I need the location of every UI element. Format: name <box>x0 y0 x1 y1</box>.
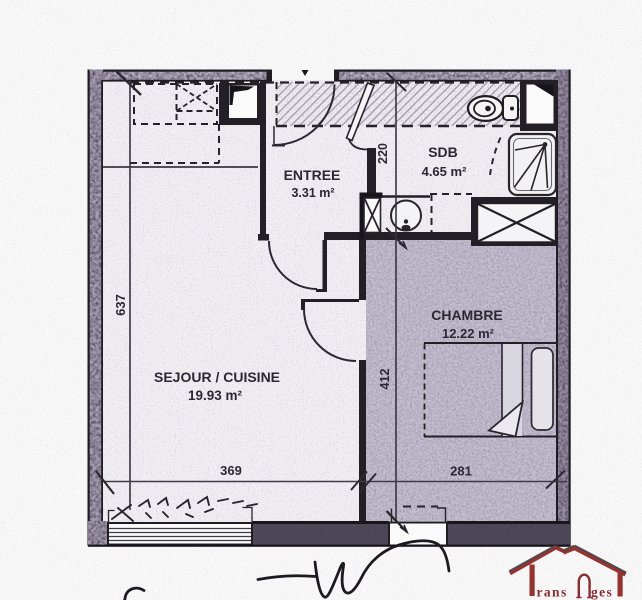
svg-text:3.31 m²: 3.31 m² <box>291 186 334 200</box>
svg-text:369: 369 <box>220 463 242 478</box>
svg-text:637: 637 <box>113 294 128 316</box>
svg-text:4.65 m²: 4.65 m² <box>422 164 467 179</box>
svg-text:CHAMBRE: CHAMBRE <box>431 307 503 323</box>
svg-text:220: 220 <box>376 143 390 164</box>
svg-text:19.93 m²: 19.93 m² <box>188 388 243 403</box>
svg-text:SDB: SDB <box>428 144 458 160</box>
svg-text:412: 412 <box>378 369 392 390</box>
svg-text:SEJOUR / CUISINE: SEJOUR / CUISINE <box>154 369 280 385</box>
svg-text:281: 281 <box>450 464 472 479</box>
svg-text:12.22 m²: 12.22 m² <box>442 326 495 341</box>
svg-text:rans: rans <box>537 585 568 600</box>
svg-text:ENTREE: ENTREE <box>284 167 341 183</box>
svg-text:ges: ges <box>591 585 613 600</box>
